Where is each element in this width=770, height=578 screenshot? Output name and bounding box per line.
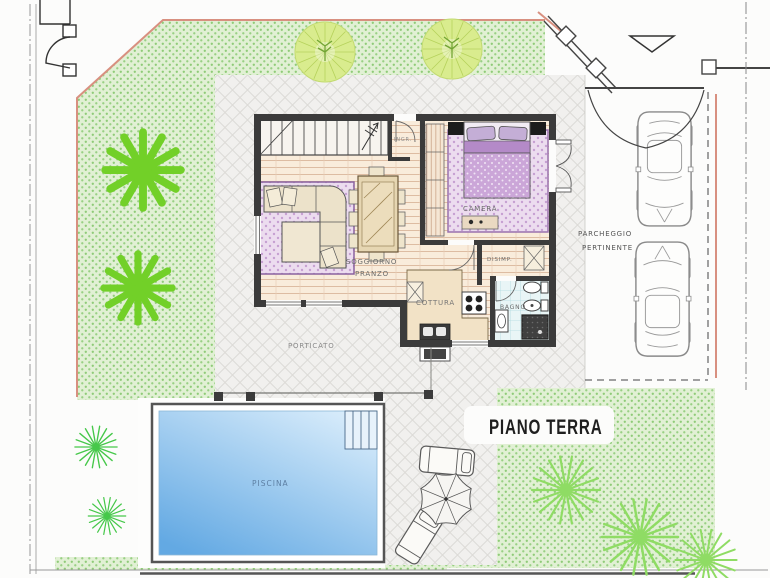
shower: [522, 315, 548, 339]
pillow-right: [499, 126, 528, 140]
floor-plan-drawing: PISCINA: [0, 0, 770, 578]
round-tree-1: [295, 22, 355, 82]
outdoor-unit: [420, 347, 450, 361]
label-disimpegno: DISIMP.: [487, 257, 513, 263]
label-parcheggio-2: PERTINENTE: [582, 244, 633, 252]
plan-title-block: PIANO TERRA: [464, 406, 614, 444]
pool-steps: [345, 411, 377, 449]
duvet: [464, 153, 530, 198]
bedroom-dresser: [462, 216, 498, 229]
round-tree-2: [422, 19, 482, 79]
entrance-arrow: [630, 36, 674, 52]
wardrobe: [426, 124, 444, 236]
hall-closet: [524, 246, 544, 270]
kitchen-sink: [420, 324, 450, 340]
sofa-pillow-2: [282, 187, 297, 206]
pillow-left: [467, 126, 496, 141]
bidet: [524, 300, 549, 311]
label-soggiorno-1: SOGGIORNO: [346, 258, 397, 266]
label-porticato: PORTICATO: [288, 342, 335, 350]
blanket-band: [464, 141, 530, 153]
label-bagno: BAGNO: [500, 304, 526, 311]
label-piscina: PISCINA: [252, 479, 289, 488]
pedestrian-gate: [40, 0, 76, 76]
sun-lounger-1: [419, 446, 475, 477]
bush-2: [88, 498, 125, 535]
label-soggiorno-2: PRANZO: [355, 270, 389, 278]
toilet: [524, 282, 549, 293]
bath-sink: [495, 310, 508, 332]
stove: [462, 292, 486, 314]
floor-plan-canvas: PISCINA: [0, 0, 770, 578]
label-cottura: COTTURA: [416, 299, 455, 307]
pool-area: PISCINA: [138, 398, 385, 568]
bush-1: [75, 426, 117, 468]
nightstand-right: [530, 122, 546, 135]
label-ingresso: INGR.: [394, 137, 412, 143]
plan-title: PIANO TERRA: [489, 415, 602, 439]
car-1: [636, 112, 693, 226]
nightstand-left: [448, 122, 464, 135]
label-parcheggio-1: PARCHEGGIO: [578, 230, 632, 238]
label-camera: CAMERA: [463, 205, 497, 213]
staircase: [260, 119, 388, 155]
car-2: [634, 242, 691, 356]
coffee-table: [282, 222, 320, 262]
